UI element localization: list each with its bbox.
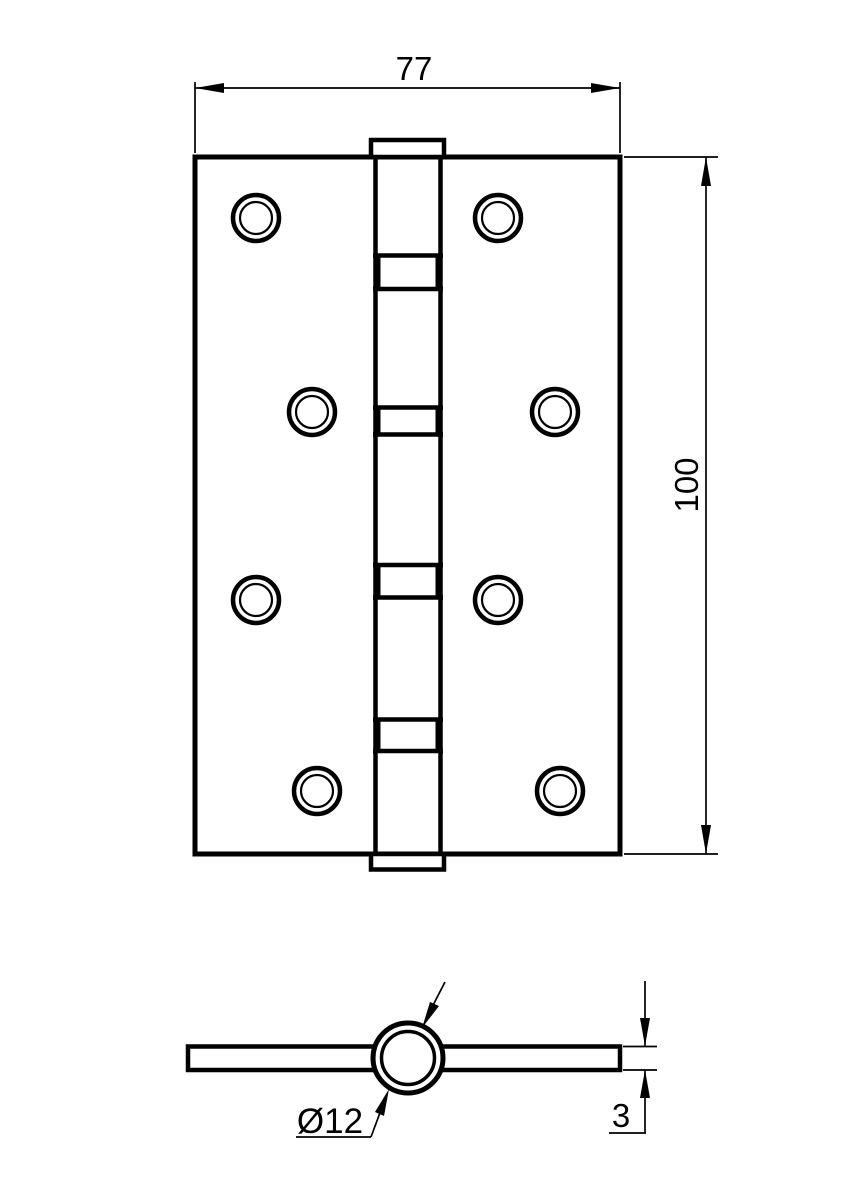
screw-hole [475,195,521,241]
barrel-cap-bottom [371,854,444,870]
screw-hole [537,768,583,814]
arrowhead-up [701,157,711,186]
screw-hole [475,577,521,623]
knuckle-divider-lines [373,256,443,752]
barrel-cap-top [371,140,444,157]
pin-gap-insets [379,256,437,752]
screw-hole [532,389,578,435]
arrowhead-up-right [375,1089,389,1116]
screw-hole [294,768,340,814]
hinge-cross-section-view: Ø12 3 [188,981,657,1141]
arrowhead-down [701,825,711,854]
arrowhead-up [640,1070,650,1098]
height-dimension: 100 [624,157,718,854]
thickness-dimension-label: 3 [612,1097,630,1134]
barrel-leader-top [422,982,445,1028]
arrowhead-left [195,83,224,93]
pin-diameter-label: Ø12 [297,1102,363,1141]
height-dimension-label: 100 [668,457,705,512]
hinge-front-view: 77 100 [195,50,718,870]
arrowhead-down [640,1018,650,1046]
barrel-cross-section-outer-circle [373,1023,443,1093]
width-dimension: 77 [195,50,620,153]
screw-hole [233,195,279,241]
arrowhead-down-left [422,1002,439,1028]
width-dimension-label: 77 [396,50,433,87]
arrowhead-right [591,83,620,93]
screw-hole [233,577,279,623]
leader-line [371,1110,381,1137]
hinge-technical-drawing: 77 100 Ø12 [0,0,848,1200]
pin-diameter-annotation: Ø12 [296,1089,389,1141]
screw-hole [289,389,335,435]
